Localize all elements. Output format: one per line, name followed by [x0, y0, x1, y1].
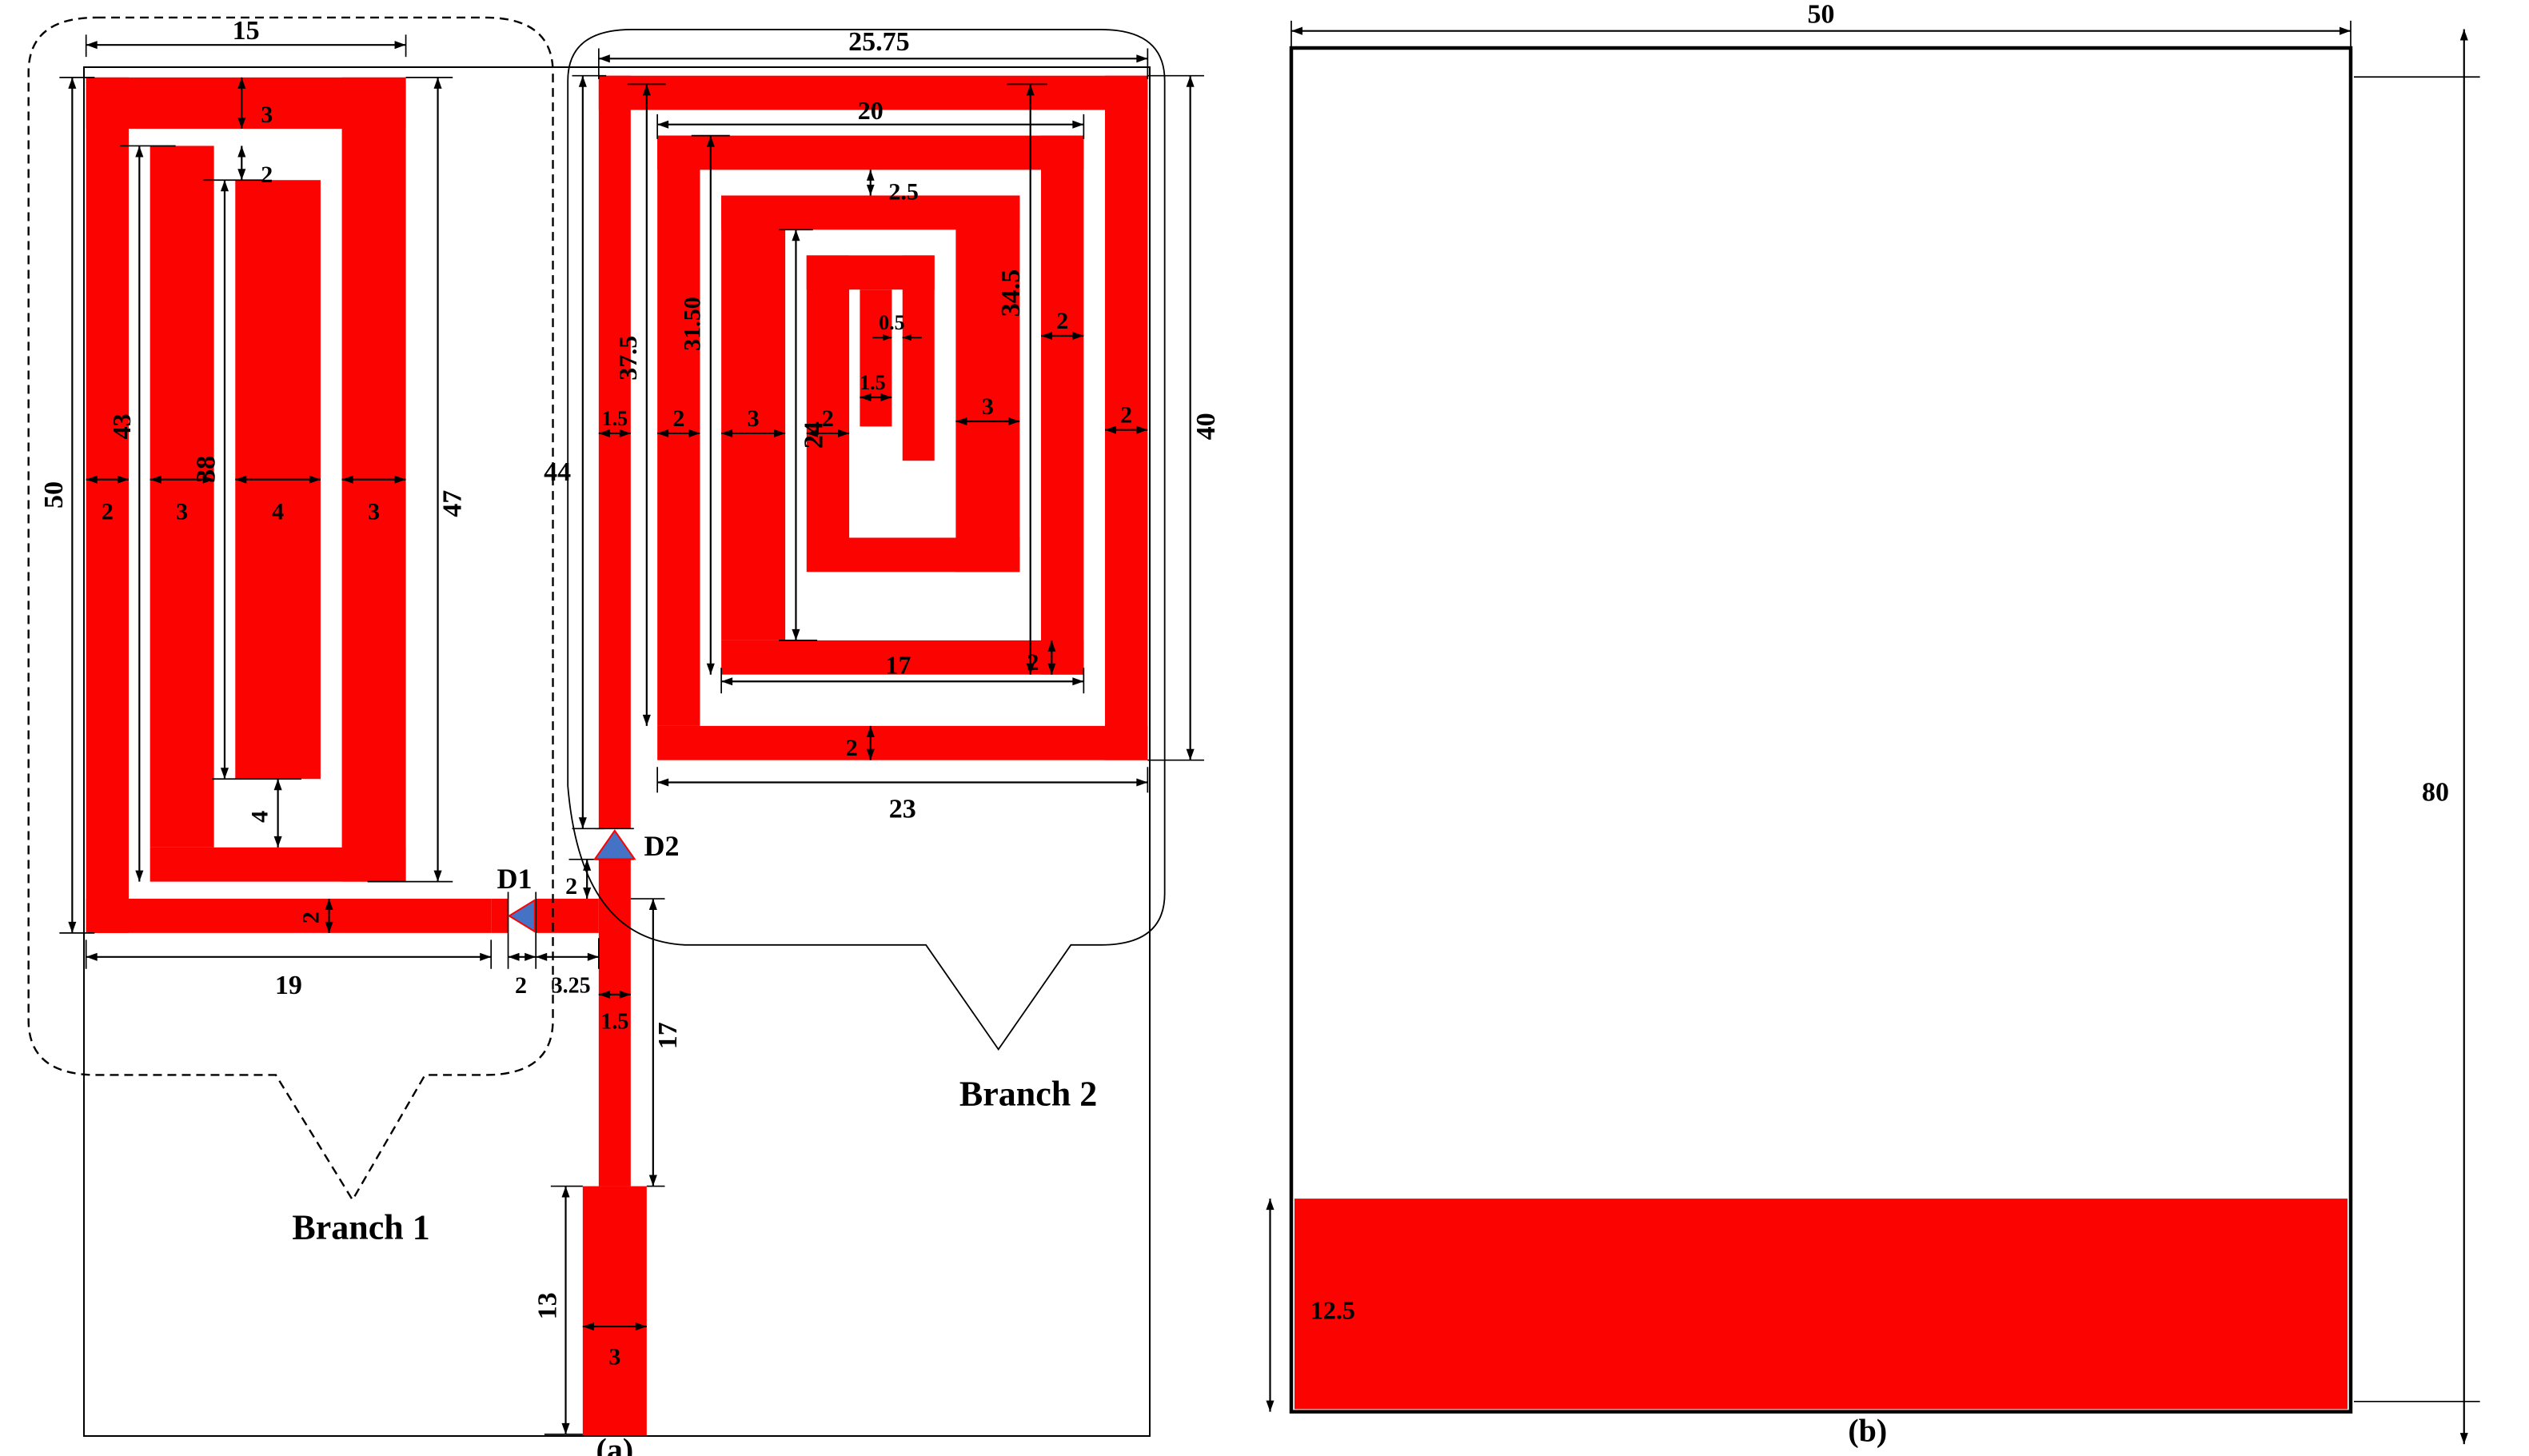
dimension-label: 80 — [2422, 778, 2449, 808]
figure-label: (a) — [596, 1432, 634, 1456]
branch1-bottom-bar — [86, 899, 492, 933]
arrowhead-icon — [2460, 30, 2468, 41]
dimension-label: 2 — [565, 873, 577, 900]
figure-label: Branch 2 — [959, 1074, 1097, 1113]
dimension-label: 2 — [1056, 308, 1068, 334]
arrowhead-icon — [561, 1423, 569, 1434]
arrowhead-icon — [643, 715, 651, 726]
arrowhead-icon — [237, 169, 245, 180]
dimension-label: 3.25 — [552, 974, 591, 999]
arrowhead-icon — [649, 1175, 657, 1187]
dimension-label: 23 — [889, 795, 916, 824]
dimension-label: 3 — [261, 102, 273, 128]
dimension-label: 3 — [748, 405, 760, 432]
arrowhead-icon — [867, 170, 875, 180]
arrowhead-icon — [509, 953, 520, 961]
arrowhead-icon — [1136, 778, 1147, 786]
arrowhead-icon — [1187, 76, 1195, 87]
dimension-label: 2 — [1120, 402, 1132, 429]
arrowhead-icon — [588, 953, 599, 961]
branch2-right-arm-3 — [955, 196, 1019, 572]
arrowhead-icon — [536, 953, 547, 961]
arrowhead-icon — [721, 677, 732, 685]
branch2-left-arm-1 — [599, 76, 631, 829]
arrowhead-icon — [1266, 1401, 1274, 1412]
branch2-right-arm-4 — [903, 255, 935, 461]
dimension-label: 4 — [272, 498, 284, 525]
arrowhead-icon — [86, 41, 98, 49]
dimension-label: 2 — [261, 162, 273, 188]
arrowhead-icon — [395, 41, 406, 49]
dimension-label: 1.5 — [600, 1010, 628, 1035]
arrowhead-icon — [68, 922, 76, 933]
dimension-label: 17 — [653, 1022, 683, 1049]
branch2-top-bar-2 — [657, 136, 1083, 170]
dimension-label: 1.5 — [602, 407, 628, 430]
arrowhead-icon — [583, 888, 591, 899]
dimension-label: 31.50 — [680, 297, 706, 351]
arrowhead-icon — [1187, 749, 1195, 760]
arrowhead-icon — [599, 54, 610, 62]
arrowhead-icon — [792, 629, 800, 640]
antenna-figure: 1532384347502343421923.25D1D22171.5133(a… — [0, 0, 2529, 1456]
feed-connector — [536, 899, 599, 933]
arrowhead-icon — [657, 121, 668, 129]
dimension-label: 2 — [1027, 649, 1039, 676]
branch2-bottom-bar-1 — [657, 726, 1147, 760]
arrowhead-icon — [135, 146, 143, 157]
dimension-label: 1.5 — [860, 371, 886, 394]
dimension-label: 43 — [107, 413, 136, 439]
arrowhead-icon — [274, 779, 282, 790]
dimension-label: 15 — [233, 16, 260, 46]
arrowhead-icon — [221, 180, 229, 191]
dimension-label: 2 — [515, 972, 527, 999]
dimension-label: 2 — [846, 735, 858, 761]
dimension-label: 2.5 — [888, 178, 919, 205]
figure-label: D2 — [644, 830, 679, 862]
figure-label: (b) — [1848, 1412, 1887, 1448]
branch2-center-stub — [860, 289, 892, 426]
dimension-label: 2 — [822, 405, 834, 432]
dimension-label: 20 — [858, 96, 884, 125]
arrowhead-icon — [1136, 54, 1147, 62]
arrowhead-icon — [480, 953, 491, 961]
arrowhead-icon — [434, 871, 442, 882]
arrowhead-icon — [1072, 121, 1083, 129]
dimension-label: 34.5 — [996, 269, 1026, 317]
dimension-label: 2 — [102, 498, 114, 525]
dimension-label: 0.5 — [879, 311, 905, 334]
dimension-label: 2 — [297, 911, 324, 923]
dimension-label: 19 — [275, 971, 302, 1000]
arrowhead-icon — [2460, 1433, 2468, 1444]
arrowhead-icon — [867, 185, 875, 195]
arrowhead-icon — [579, 76, 587, 87]
dimension-label: 17 — [885, 650, 911, 679]
arrowhead-icon — [707, 664, 715, 675]
arrowhead-icon — [1291, 27, 1302, 35]
diode-d2 — [595, 831, 635, 860]
arrowhead-icon — [237, 146, 245, 157]
dimension-label: 13 — [533, 1292, 562, 1319]
arrowhead-icon — [561, 1187, 569, 1198]
branch2-right-arm-2 — [1041, 136, 1083, 675]
dimension-label: 3 — [608, 1344, 620, 1370]
feed-line — [583, 1187, 647, 1436]
dimension-label: 50 — [1808, 0, 1835, 29]
arrowhead-icon — [2340, 27, 2351, 35]
feed-tab — [491, 899, 508, 933]
ground-plane — [1294, 1199, 2348, 1409]
dimension-label: 12.5 — [1310, 1295, 1355, 1324]
figure-svg: 1532384347502343421923.25D1D22171.5133(a… — [0, 0, 2529, 1456]
arrowhead-icon — [525, 953, 536, 961]
arrowhead-icon — [792, 229, 800, 241]
dimension-label: 3 — [176, 498, 188, 525]
arrowhead-icon — [434, 78, 442, 89]
arrowhead-icon — [221, 768, 229, 779]
arrowhead-icon — [649, 899, 657, 910]
arrowhead-icon — [86, 953, 98, 961]
dimension-label: 3 — [368, 498, 380, 525]
dimension-label: 2 — [672, 405, 684, 432]
dimension-label: 37.5 — [613, 336, 642, 381]
dimension-label: 40 — [1191, 413, 1221, 440]
arrowhead-icon — [274, 836, 282, 848]
dimension-label: 47 — [438, 490, 468, 517]
dimension-label: 50 — [39, 481, 69, 509]
arrowhead-icon — [657, 778, 668, 786]
arrowhead-icon — [135, 871, 143, 882]
arrowhead-icon — [1266, 1199, 1274, 1210]
dimension-label: 4 — [247, 811, 273, 823]
branch1-inner-bottom-bar — [150, 848, 406, 882]
arrowhead-icon — [68, 78, 76, 89]
dimension-label: 3 — [982, 393, 994, 420]
arrowhead-icon — [579, 817, 587, 828]
branch1-strip-a — [150, 146, 214, 847]
figure-label: Branch 1 — [292, 1207, 429, 1247]
diode-d1 — [509, 900, 535, 931]
dimension-label: 44 — [544, 457, 571, 487]
arrowhead-icon — [1072, 677, 1083, 685]
figure-label: D1 — [497, 863, 533, 895]
branch2-left-arm-4 — [807, 255, 849, 537]
dimension-label: 25.75 — [848, 27, 910, 57]
branch2-bottom-bar-3 — [807, 538, 1020, 572]
